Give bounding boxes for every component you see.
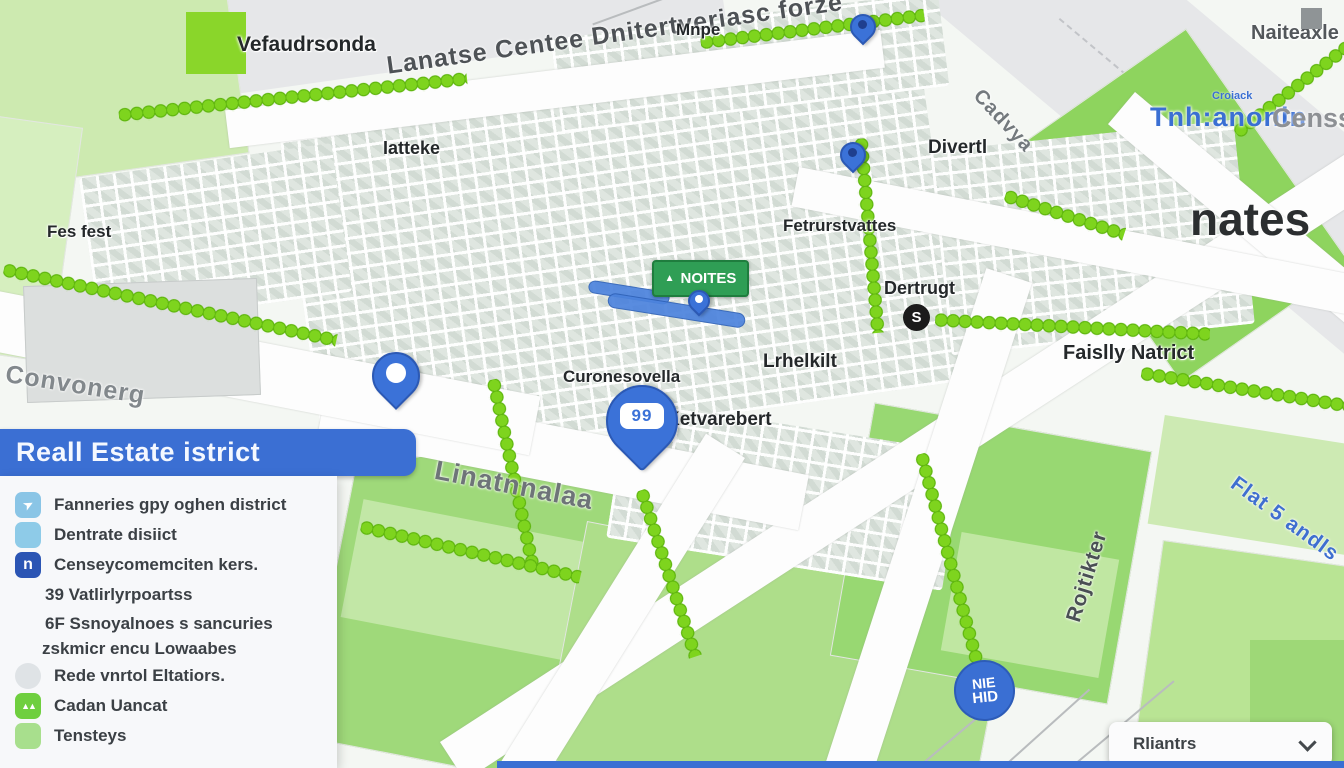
legend-item: Dentrate disiict bbox=[0, 520, 337, 550]
place-label: Iatteke bbox=[383, 138, 440, 159]
pin-inner-circle bbox=[386, 363, 406, 383]
place-label: nates bbox=[1190, 192, 1310, 246]
place-label: Fes fest bbox=[47, 222, 111, 242]
notes-sign-label: NOITES bbox=[681, 270, 737, 287]
green-square-icon bbox=[15, 723, 41, 749]
transit-logo: Croiack Tnh:anonin Censs bbox=[1150, 84, 1340, 134]
layer-dropdown[interactable]: Rliantrs bbox=[1109, 722, 1332, 766]
pin-inner-circle bbox=[858, 20, 867, 29]
legend-item-label: Rede vnrtol Eltatiors. bbox=[54, 666, 225, 686]
mountain-icon: ▲▲ bbox=[15, 693, 41, 719]
place-label: Fetrurstvattes bbox=[783, 216, 896, 236]
gray-circle-icon bbox=[15, 663, 41, 689]
map-canvas[interactable]: Lanatse Centee Dnitertveriasc forze Conv… bbox=[0, 0, 1344, 768]
logo-small-text: Croiack bbox=[1212, 90, 1252, 102]
legend-item: n Censeycomemciten kers. bbox=[0, 550, 337, 580]
map-marker-square bbox=[1301, 8, 1322, 29]
district-square-icon bbox=[15, 522, 41, 548]
legend-item: ▲▲ Cadan Uancat bbox=[0, 691, 337, 721]
legend-item: ➤ Fanneries gpy oghen district bbox=[0, 490, 337, 520]
pin-inner-circle bbox=[695, 295, 703, 303]
place-label: Divertl bbox=[928, 137, 987, 159]
s-transit-marker[interactable]: S bbox=[903, 304, 930, 331]
navigation-icon: ➤ bbox=[15, 492, 41, 518]
dropdown-value: Rliantrs bbox=[1133, 734, 1196, 754]
legend-item-label: Tensteys bbox=[54, 726, 126, 746]
map-pin-speech[interactable]: 99 bbox=[606, 385, 678, 457]
place-label: Dertrugt bbox=[884, 278, 955, 299]
legend-item: 39 Vatlirlyrpoartss bbox=[0, 580, 337, 610]
legend-item: zskmicr encu Lowaabes bbox=[0, 637, 337, 661]
tree-row bbox=[1140, 366, 1344, 414]
legend-item-label: 6F Ssnoyalnoes s sancuries bbox=[45, 614, 273, 634]
logo-suffix-text: Censs bbox=[1272, 103, 1344, 134]
place-label: Ketvarebert bbox=[666, 409, 772, 431]
legend-item: Rede vnrtol Eltatiors. bbox=[0, 661, 337, 691]
speech-bubble-icon: 99 bbox=[620, 403, 664, 429]
legend-item-label: Dentrate disiict bbox=[54, 525, 177, 545]
legend-item-label: zskmicr encu Lowaabes bbox=[42, 639, 237, 659]
map-pin-small[interactable] bbox=[850, 14, 876, 40]
speech-glyph: 99 bbox=[632, 406, 653, 426]
legend-item: Tensteys bbox=[0, 721, 337, 751]
pin-inner-circle bbox=[848, 148, 857, 157]
legend-item-label: Fanneries gpy oghen district bbox=[54, 495, 286, 515]
n-monogram-icon: n bbox=[15, 552, 41, 578]
bottom-accent-bar bbox=[497, 761, 1344, 768]
legend-title: Reall Estate istrict bbox=[0, 437, 260, 468]
place-label: Mnpe bbox=[676, 20, 720, 40]
legend-panel: ➤ Fanneries gpy oghen district Dentrate … bbox=[0, 476, 337, 768]
map-pin-small[interactable] bbox=[688, 290, 710, 312]
legend-item-label: Cadan Uancat bbox=[54, 696, 167, 716]
legend-item-label: 39 Vatlirlyrpoartss bbox=[45, 585, 192, 605]
place-label: Vefaudrsonda bbox=[237, 33, 376, 57]
nie-hid-line2: HID bbox=[972, 689, 999, 707]
place-label: Lrhelkilt bbox=[763, 351, 837, 373]
map-pin-large[interactable] bbox=[372, 352, 420, 400]
map-pin-small[interactable] bbox=[840, 142, 866, 168]
legend-item: 6F Ssnoyalnoes s sancuries bbox=[0, 610, 337, 637]
chevron-down-icon bbox=[1298, 733, 1316, 751]
place-label: Naiteaxle bbox=[1251, 22, 1339, 45]
place-label: Curonesovella bbox=[563, 367, 680, 387]
triangle-icon: ▲ bbox=[665, 273, 675, 284]
place-label: Faislly Natrict bbox=[1063, 342, 1194, 365]
legend-header: Reall Estate istrict bbox=[0, 429, 416, 476]
legend-item-label: Censeycomemciten kers. bbox=[54, 555, 258, 575]
